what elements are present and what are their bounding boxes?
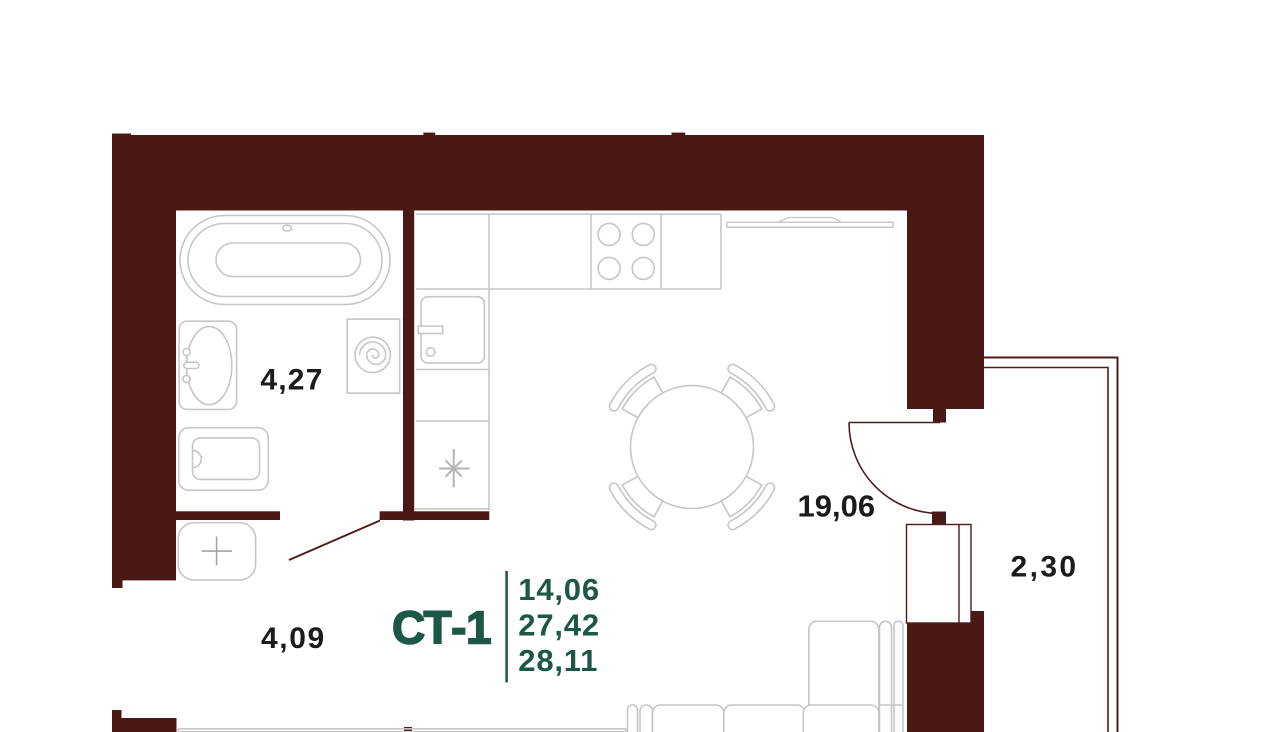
svg-text:28,11: 28,11: [518, 643, 598, 678]
svg-text:27,42: 27,42: [518, 608, 600, 643]
svg-text:14,06: 14,06: [518, 572, 600, 607]
svg-text:СТ-1: СТ-1: [392, 602, 491, 654]
svg-text:2,30: 2,30: [1011, 551, 1079, 584]
svg-text:4,09: 4,09: [261, 622, 326, 655]
svg-text:4,27: 4,27: [260, 364, 323, 397]
svg-text:19,06: 19,06: [798, 489, 876, 524]
